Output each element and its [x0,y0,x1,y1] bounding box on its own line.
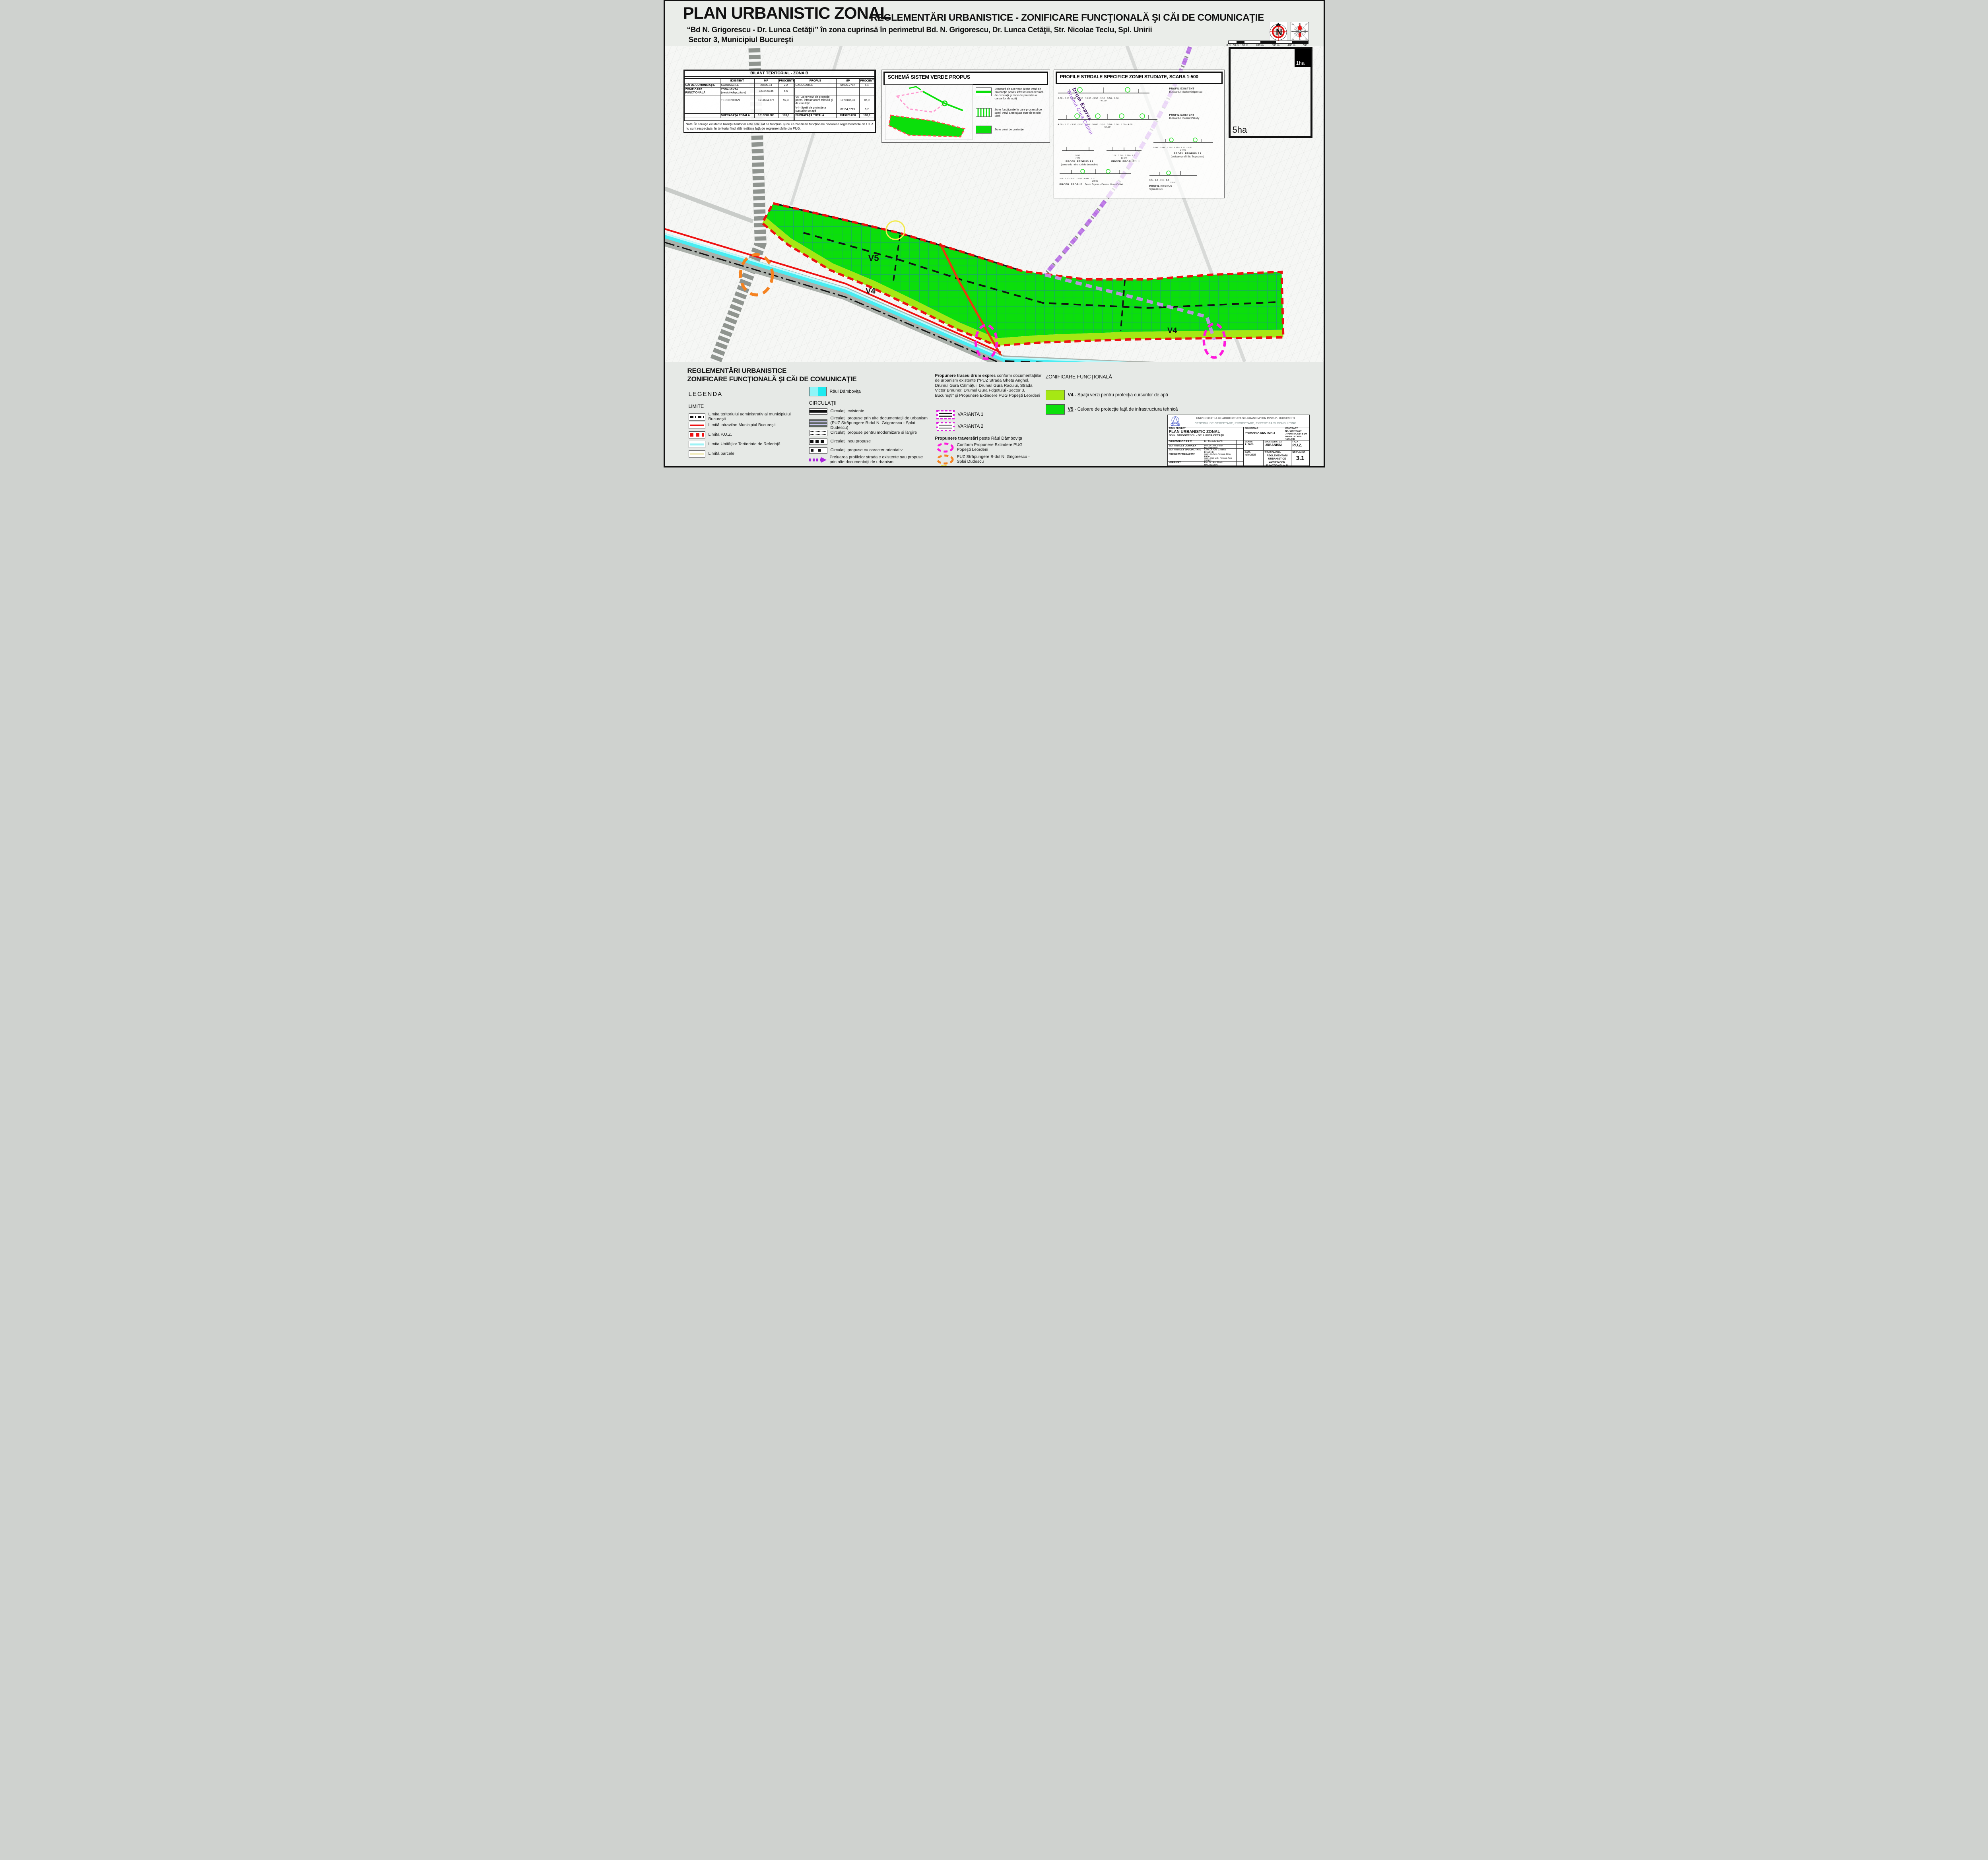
bilant-box: BILANT TERITORIAL - ZONA B EXISTENT MP P… [683,70,876,133]
cell: 92,3 [778,95,794,106]
cell: 1211604,577 [754,95,778,106]
profile-drawing [1060,145,1096,153]
profile-sub: Drum Expres - Drumul Gura Calitei [1085,183,1123,186]
zonificare-title: ZONIFICARE FUNCŢIONALĂ [1046,374,1112,380]
limita-administrativ-swatch [689,413,705,421]
contract-label: CONTRACT [1285,427,1308,430]
limita-utr-swatch [689,441,705,448]
v4-swatch [1046,390,1065,400]
cell: 2,2 [778,83,794,87]
profile-sub: Bulevardul Theodor Pallady [1169,117,1222,120]
axe-verzi-swatch [976,87,992,96]
map-label-v5: V5 [868,253,879,263]
cell [836,87,859,95]
role-label: DIRECTOR C.C.P.E.C. [1168,440,1203,445]
cell: V5 - Zone verzi de protecţie pentru infr… [794,95,836,106]
role-name: Asist.Drd. Urb. Peisag. Ana OPRIS [1203,457,1236,462]
legend-heading-2: ZONIFICARE FUNCŢIONALĂ ŞI CĂI DE COMUNIC… [687,375,857,383]
windrose-e: E [1307,31,1308,33]
role-label [1168,457,1203,462]
role-name: Conf.Dr. Arh. Cristina ENACHE [1203,449,1236,453]
v4-code: V4 [1068,393,1074,398]
compass: N [1269,22,1287,41]
profiles-title: PROFILE STRDALE SPECIFICE ZONEI STUDIATE… [1056,72,1223,84]
cell: ZONĂ MIXTĂ (servicii+depozitare) [720,87,754,95]
ha5-label: 5ha [1233,125,1247,135]
windrose-se: SE [1305,39,1307,41]
profile-name: PROFIL PROPUS [1149,185,1221,188]
col-mp-2: MP [836,79,859,83]
windrose-center: 12 [1299,31,1301,33]
traversare-magenta-swatch [936,442,954,453]
propunere-paragraph: Propunere traseu drum expres conform doc… [935,373,1042,398]
circulatii-alte-doc-label: Circulaţii propuse prin alte documentaţi… [831,416,932,430]
circulatii-existente-label: Circulaţii existente [831,409,932,414]
windrose-n: N [1299,23,1300,26]
profile-name: PROFIL PROPUS 1.II [1105,160,1146,163]
scale-label-100: 100 m [1241,44,1248,47]
legenda-title: LEGENDA [689,391,723,398]
raul-dambovita-label: Râul Dâmboviţa [830,389,861,394]
scale-label-50: 50 m [1233,44,1239,47]
cell [794,87,836,95]
compass-n-label: N [1276,27,1282,37]
profile-drawing [1058,112,1157,122]
circulatii-modernizare-swatch [809,430,827,436]
windrose-sv: SV [1291,39,1294,41]
profile-sub: (preluare profil Str. Trapezului) [1153,155,1222,158]
preluare-profile-label: Preluarea profilelor stradale existente … [830,455,931,465]
title-block: UNIVERSITATEA DE ARHITECTURA SI URBANISM… [1167,415,1310,466]
bilant-table: BILANT TERITORIAL - ZONA B EXISTENT MP P… [684,70,875,121]
intersectii-swatch [938,465,950,467]
ha1-square: 1ha [1295,48,1311,67]
profile-total: 23.50 [1149,182,1197,184]
col-procente-1: PROCENTE [778,79,794,83]
col-mp-1: MP [754,79,778,83]
nr-plansa-label: NR.PLANSA [1293,451,1308,454]
zone-30-swatch [976,108,992,117]
center-name: CENTRUL DE CERCETARE, PROIECTARE, EXPERT… [1184,421,1308,425]
profile-name: PROFIL PROPUS 2.I [1153,152,1222,155]
varianta1-label: VARIANTA 1 [958,412,984,417]
varianta2-swatch [936,422,955,431]
page-title-2: REGLEMENTĂRI URBANISTICE - ZONIFICARE FU… [871,12,1264,23]
limita-intravilan-label: Limită intravilan Municipiul Bucureşti [709,423,808,428]
windrose: 12 N S V E NV NE SV SE [1291,22,1309,41]
profile-total: 28.00 [1060,180,1131,182]
profile-sub: Bulevardul Nicolae Grigorescu [1169,91,1222,93]
traversare-orange-swatch [936,454,954,465]
circulatii-alte-doc-swatch [809,419,827,427]
profile-drawing [1060,169,1131,176]
profile-drawing [1153,137,1213,145]
windrose-nv: NV [1291,23,1294,25]
varianta1-swatch [936,410,955,419]
limita-intravilan-swatch [689,422,705,429]
contract-value: NR. CONTRACT 7073/07.07.2014 B (nr. UAUI… [1285,430,1308,441]
header-band: PLAN URBANISTIC ZONAL REGLEMENTĂRI URBAN… [665,1,1324,46]
traversare-orange-label: PUZ Străpungere B-dul N. Grigorescu - Sp… [957,455,1037,464]
role-name: Prof.Dr. Arh. Florin MACHEDON [1203,445,1236,449]
v5-code: V5 [1068,407,1074,412]
faza-value: P.U.Z. [1293,443,1308,447]
data-value: iulie 2015 [1245,454,1262,456]
role-name: Asist.Dr. Urb.Peisag. Irina PATA [1203,453,1236,458]
circulatii-modernizare-label: Circulaţii propuse pentru modernizare si… [831,431,932,435]
nr-plansa-value: 3.1 [1293,455,1308,462]
limita-parcele-label: Limită parcele [709,452,808,456]
role-label: VERIFICAT [1168,462,1203,466]
map-label-v4: V4 [866,287,876,296]
limite-title: LIMITE [689,403,704,409]
scale-label-400: 400 m [1288,44,1295,47]
map-label-v4b: V4 [1167,326,1177,335]
schema-legend-1: Structură de axe verzi (zone verzi de pr… [995,87,1047,100]
cell: 6,7 [859,106,874,113]
circulatii-existente-swatch [809,408,827,415]
cell [720,106,754,113]
scara-value: 1: 5000 [1245,443,1262,446]
role-label: PROIECTAT/REDACTAT [1168,453,1203,458]
page-subtitle-1: “Bd N. Grigorescu - Dr. Lunca Cetăţii” î… [687,26,1152,35]
bilant-title: BILANT TERITORIAL - ZONA B [684,71,874,77]
cell: TEREN VIRAN [720,95,754,106]
traversare-magenta-label: Conform Propunere Extindere PUG Popeşti … [957,443,1037,452]
circulatii-orientativ-swatch [809,447,827,454]
circulatii-nou-swatch [809,438,827,445]
titlu-plansa-label: TITLU PLANSA [1265,451,1290,454]
cell: 87,9 [859,95,874,106]
profile-total: 10.00 [1105,157,1143,159]
profile-total: 7.00 [1060,157,1096,159]
cell: V4 - Spaţii de protecţie a cursurilor de… [794,106,836,113]
limita-administrativ-label: Limita teritoriului administrativ al mun… [709,412,808,422]
cell: 72724,5835 [754,87,778,95]
specialitatea-value: URBANISM [1265,443,1290,447]
university-name: UNIVERSITATEA DE ARHITECTURA SI URBANISM… [1184,417,1308,420]
circulatii-title: CIRCULAŢII [809,400,837,406]
schema-box: SCHEMĂ SISTEM VERDE PROPUS Structură de … [881,70,1050,143]
circulatii-nou-label: Circulaţii nou propuse [831,439,932,444]
profile-total: 24.00 [1153,149,1213,151]
traversari-bold: Propunere traversări [935,436,978,441]
profile-name: PROFIL PROPUS 1.I [1060,160,1099,163]
cell [684,95,720,106]
traversari-rest: peste Râul Dâmboviţa [978,436,1022,441]
titlu-proiect-2: BD N. GRIGORESCU - DR. LUNCA CETĂŢII [1169,434,1242,437]
page-subtitle-2: Sector 3, Municipiul Bucureşti [689,36,793,45]
traversari-heading: Propunere traversări peste Râul Dâmboviţ… [935,436,1023,441]
profile-name: PROFIL PROPUS [1060,183,1083,186]
varianta2-label: VARIANTA 2 [958,424,984,429]
profiles-box: PROFILE STRDALE SPECIFICE ZONEI STUDIATE… [1054,70,1225,198]
titlu-proiect-1: PLAN URBANISTIC ZONAL [1169,430,1242,434]
cell [778,106,794,113]
zone-verzi-swatch [976,126,992,134]
scale-label-200: 200 m [1256,44,1264,47]
circulatii-orientativ-label: Circulaţii propuse cu caracter orientati… [831,448,932,453]
page-title: PLAN URBANISTIC ZONAL [683,4,890,23]
schema-legend-2: Zone funcţionale în care procentul de sp… [995,108,1047,118]
v5-swatch [1046,404,1065,415]
schema-legend-3: Zone verzi de protecţie [995,128,1024,131]
col-existent: EXISTENT [720,79,754,83]
profile-name: PROFIL EXISTENT [1169,114,1222,117]
cell: 1313220.000 [754,113,778,118]
plan-sheet: V5 V4 V4 PLAN URBANISTIC ZONAL REGLEMENT… [664,0,1325,467]
uauim-logo [1169,416,1181,426]
scale-label-300: 300 m [1272,44,1279,47]
v4-text: - Spaţii verzi pentru protecţia cursuril… [1074,393,1168,398]
preluare-profile-swatch [809,457,827,463]
profile-sub: Splaiul Unirii [1149,188,1221,191]
cell [684,106,720,113]
cell: 1313220.000 [836,113,859,118]
cell: CAROSABILE [720,83,754,87]
cell [754,106,778,113]
role-name: Ec. Daniela RACU [1203,440,1236,445]
scale-label-0: 0 m [1227,44,1231,47]
col-propus: PROPUS [794,79,836,83]
row-cat: CĂI DE COMUNICAŢIE [684,83,720,87]
titlu-plansa-value: REGLEMENTĂRI URBANISTICE ZONIFICARE FUNC… [1265,454,1290,467]
row-cat: ZONIFICARE FUNCTIONALĂ [684,87,720,95]
role-name: Prof.Dr. Arh. Florin MACHEDON [1203,462,1236,466]
schema-drawing [885,84,973,140]
windrose-ne: NE [1305,23,1307,25]
v5-text: - Culoare de protecţie faţă de infrastru… [1074,407,1178,412]
limita-parcele-swatch [689,450,705,458]
cell: 81164,5719 [836,106,859,113]
role-label: SEF PROIECT COMPLEX [1168,445,1203,449]
limita-utr-label: Limita Unităţilor Teritoriate de Referin… [709,442,808,447]
profile-drawing [1149,170,1197,177]
profile-total: 57.00 [1058,126,1157,128]
profile-drawing [1105,145,1143,153]
ha1-label: 1ha [1296,60,1305,66]
role-label: SEF PROIECT SPECIALITATE [1168,449,1203,453]
limita-puz-swatch [689,431,705,438]
bilant-note: Notă: În situaţia existentă bilanţul ter… [684,121,875,132]
beneficiar-label: BENEFICIAR [1245,427,1283,430]
cell [684,113,720,118]
legend-heading-1: REGLEMENTĂRI URBANISTICE [687,367,787,375]
legend-band: REGLEMENTĂRI URBANISTICE ZONIFICARE FUNC… [665,362,1324,467]
profile-name: PROFIL EXISTENT [1169,87,1222,91]
cell: CAROSABILE [794,83,836,87]
col-procente-2: PROCENTE [859,79,874,83]
cell [859,87,874,95]
cell: 1070187,35 [836,95,859,106]
cell: 100,0 [859,113,874,118]
profile-sub: (sens unic - drumuri de deservire) [1060,163,1099,166]
cell: 5,5 [778,87,794,95]
limita-puz-label: Limita P.U.Z. [709,433,808,437]
beneficiar-value: PRIMARIA SECTOR 3 [1245,431,1283,434]
windrose-v: V [1291,31,1293,33]
schema-title: SCHEMĂ SISTEM VERDE PROPUS [883,72,1048,85]
cell: SUPRAFAŢĂ TOTALĂ [794,113,836,118]
ha5-square: 5ha 1ha [1229,47,1312,138]
cell: 5,4 [859,83,874,87]
cell: SUPRAFAŢĂ TOTALĂ [720,113,754,118]
scale-bar: 0 m 50 m 100 m 200 m 300 m 400 m 500 m [1228,41,1309,48]
cell: 100,0 [778,113,794,118]
propunere-bold: Propunere traseu drum expres [935,373,996,378]
raul-dambovita-swatch [809,387,827,396]
cell: 66039,2787 [836,83,859,87]
cell: 28890,84 [754,83,778,87]
